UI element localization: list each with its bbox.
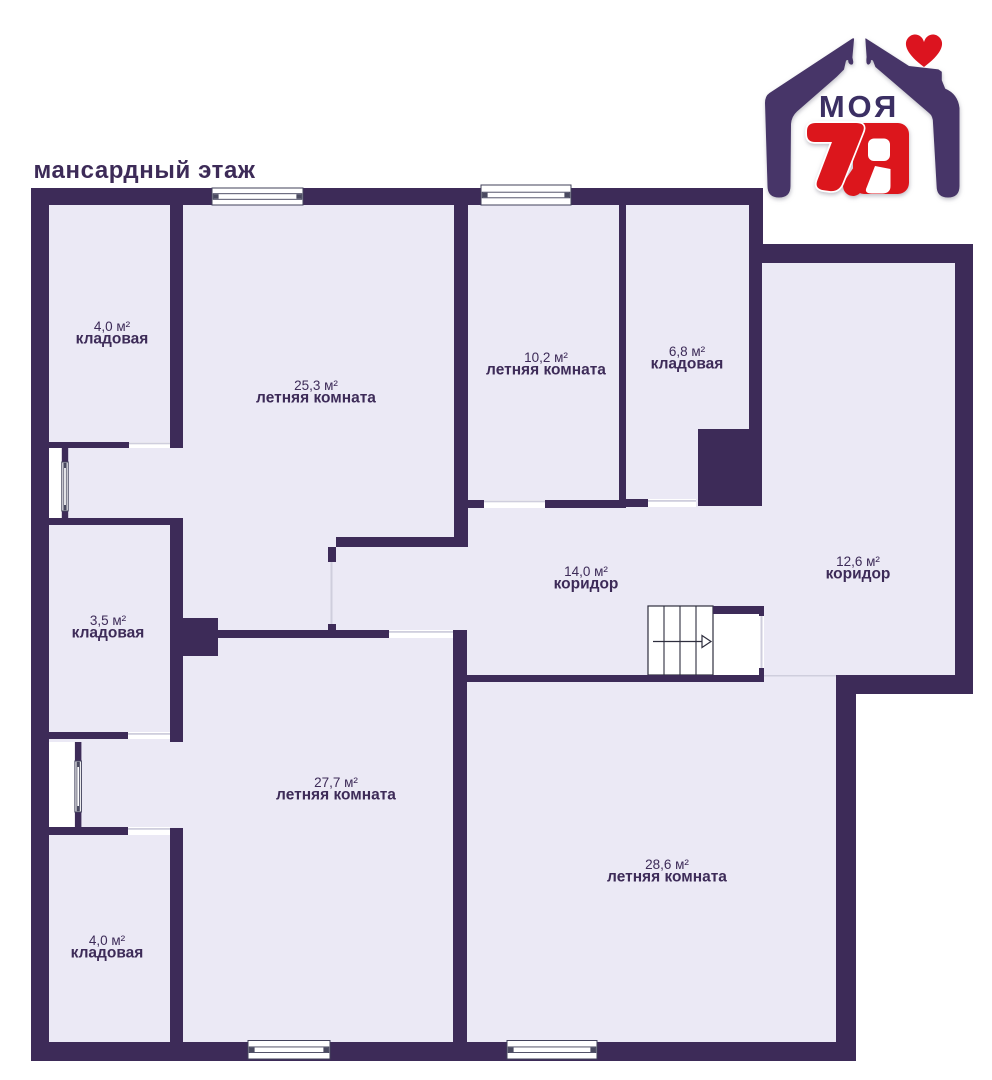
svg-text:коридор: коридор bbox=[826, 565, 891, 582]
svg-text:кладовая: кладовая bbox=[71, 944, 144, 961]
svg-text:летняя комната: летняя комната bbox=[276, 786, 396, 803]
svg-text:летняя комната: летняя комната bbox=[607, 868, 727, 885]
svg-text:МОЯ: МОЯ bbox=[819, 89, 899, 124]
svg-text:кладовая: кладовая bbox=[651, 355, 724, 372]
svg-text:летняя комната: летняя комната bbox=[256, 389, 376, 406]
svg-text:летняя комната: летняя комната bbox=[486, 361, 606, 378]
svg-text:мансардный этаж: мансардный этаж bbox=[34, 157, 256, 184]
svg-text:кладовая: кладовая bbox=[72, 624, 145, 641]
svg-text:кладовая: кладовая bbox=[76, 330, 149, 347]
svg-text:коридор: коридор bbox=[554, 575, 619, 592]
